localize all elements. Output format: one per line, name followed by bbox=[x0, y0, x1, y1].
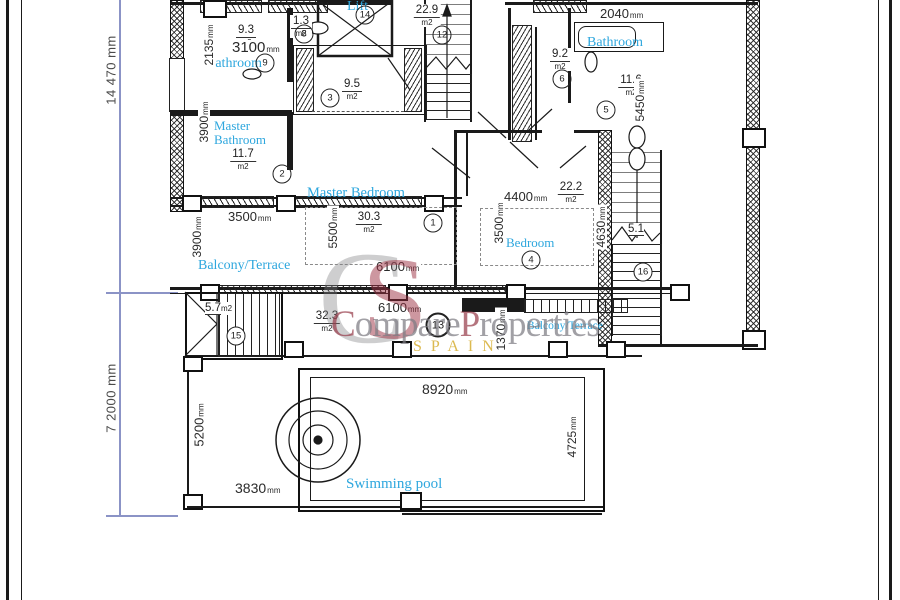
area-master-bathroom: 11.7m2 bbox=[229, 148, 257, 171]
area-dressing: 9.5m2 bbox=[341, 78, 363, 101]
room-label-master-bathroom-line1: Master bbox=[214, 119, 250, 132]
dim-3100: 3100mm bbox=[230, 40, 282, 55]
dim-2135: 2135mm bbox=[203, 22, 215, 67]
room-label-master-bedroom: Master Bedroom bbox=[307, 186, 405, 201]
area-outdoor-stairs: 5.7m2 bbox=[205, 302, 232, 315]
dim-4400: 4400mm bbox=[502, 190, 549, 203]
room-number-12: 12 bbox=[433, 26, 452, 45]
area-bedroom: 22.2m2 bbox=[557, 181, 585, 204]
dim-4725: 4725mm bbox=[566, 414, 578, 459]
room-number-3: 3 bbox=[321, 89, 340, 108]
dim-3900-lower: 3900mm bbox=[191, 214, 203, 259]
dim-1370: 1370mm bbox=[495, 307, 507, 352]
room-number-13: 13 bbox=[426, 313, 451, 338]
linework-layer bbox=[0, 0, 900, 600]
room-number-9: 9 bbox=[256, 54, 275, 73]
room-number-6: 6 bbox=[553, 70, 572, 89]
room-number-8: 8 bbox=[295, 25, 314, 44]
dim-6100-lower: 6100mm bbox=[376, 301, 423, 314]
area-right-stairs: 5.1 bbox=[628, 223, 644, 236]
dim-5500: 5500mm bbox=[327, 205, 339, 250]
dim-5200: 5200mm bbox=[193, 401, 206, 448]
room-number-2: 2 bbox=[273, 165, 292, 184]
area-bedroom-small: 9.2m2 bbox=[549, 48, 571, 71]
area-top-terrace: 22.9m2 bbox=[413, 4, 441, 27]
dim-3900-upper: 3900mm bbox=[198, 99, 210, 144]
dim-5450: 5450mm bbox=[634, 78, 646, 123]
dim-3830: 3830mm bbox=[233, 481, 282, 495]
dim-8920: 8920mm bbox=[420, 382, 469, 396]
room-number-5: 5 bbox=[597, 101, 616, 120]
room-number-4: 4 bbox=[522, 251, 541, 270]
dim-2040: 2040mm bbox=[598, 7, 645, 20]
area-master-bedroom: 30.3m2 bbox=[355, 211, 383, 234]
room-number-15: 15 bbox=[227, 327, 246, 346]
area-balcony: 32.3m2 bbox=[313, 310, 341, 333]
room-label-bedroom: Bedroom bbox=[506, 236, 554, 249]
dim-4630: 4630mm bbox=[595, 204, 607, 249]
room-number-1: 1 bbox=[424, 214, 443, 233]
room-label-master-bathroom-line2: Bathroom bbox=[214, 133, 266, 146]
room-number-14: 14 bbox=[356, 6, 375, 25]
room-label-bathroom-top-right: Bathroom bbox=[587, 36, 643, 50]
room-label-balcony-left: Balcony/Terrace bbox=[198, 259, 290, 273]
room-label-swimming-pool: Swimming pool bbox=[346, 477, 442, 492]
dim-3500-v: 3500mm bbox=[493, 200, 505, 245]
room-label-balcony-mid: Balcony/Terrace bbox=[527, 321, 603, 333]
floor-plan-page: 14 470 mm 7 2000 mm bbox=[0, 0, 900, 600]
dim-6100-upper: 6100mm bbox=[374, 260, 421, 273]
room-number-16: 16 bbox=[634, 263, 653, 282]
spiral-stair bbox=[276, 398, 360, 482]
dim-3500-h: 3500mm bbox=[226, 210, 273, 223]
